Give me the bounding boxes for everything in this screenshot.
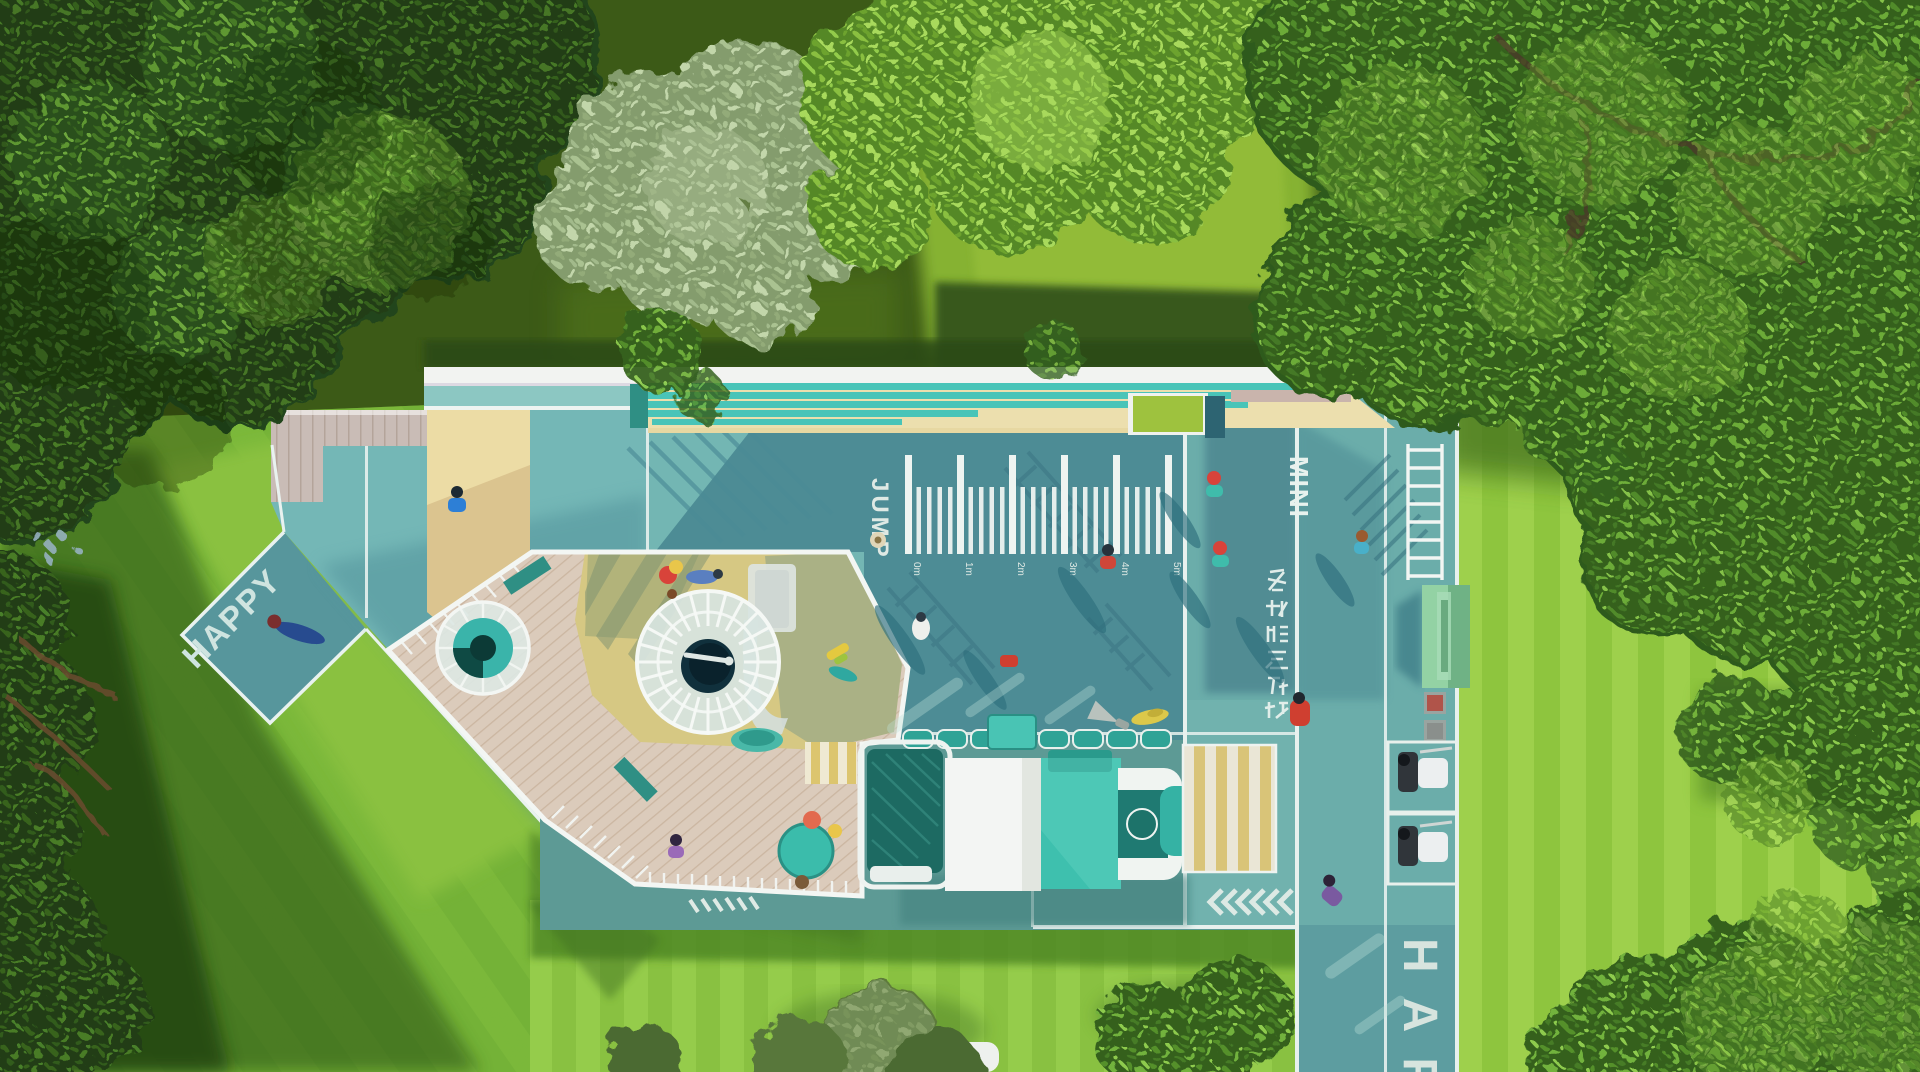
svg-text:2m: 2m <box>1015 562 1026 576</box>
svg-text:4m: 4m <box>1119 562 1130 576</box>
svg-text:0m: 0m <box>911 562 922 576</box>
svg-text:MINI: MINI <box>1284 456 1314 519</box>
svg-text:1m: 1m <box>963 562 974 576</box>
svg-text:JUMP: JUMP <box>866 478 893 561</box>
